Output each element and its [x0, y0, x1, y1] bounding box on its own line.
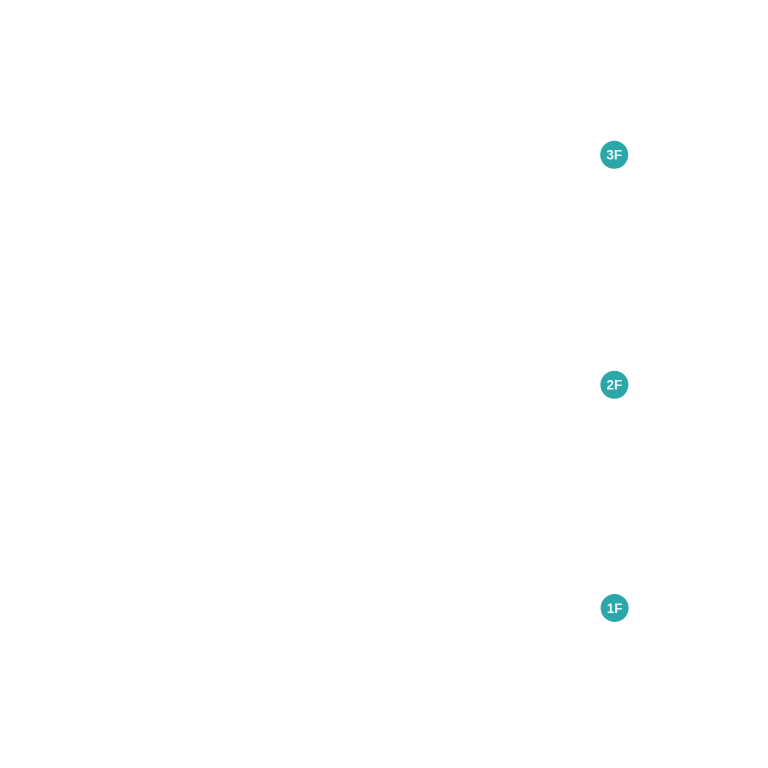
- svg-text:2F: 2F: [607, 378, 623, 393]
- svg-text:3F: 3F: [606, 148, 622, 163]
- svg-text:1F: 1F: [607, 601, 623, 616]
